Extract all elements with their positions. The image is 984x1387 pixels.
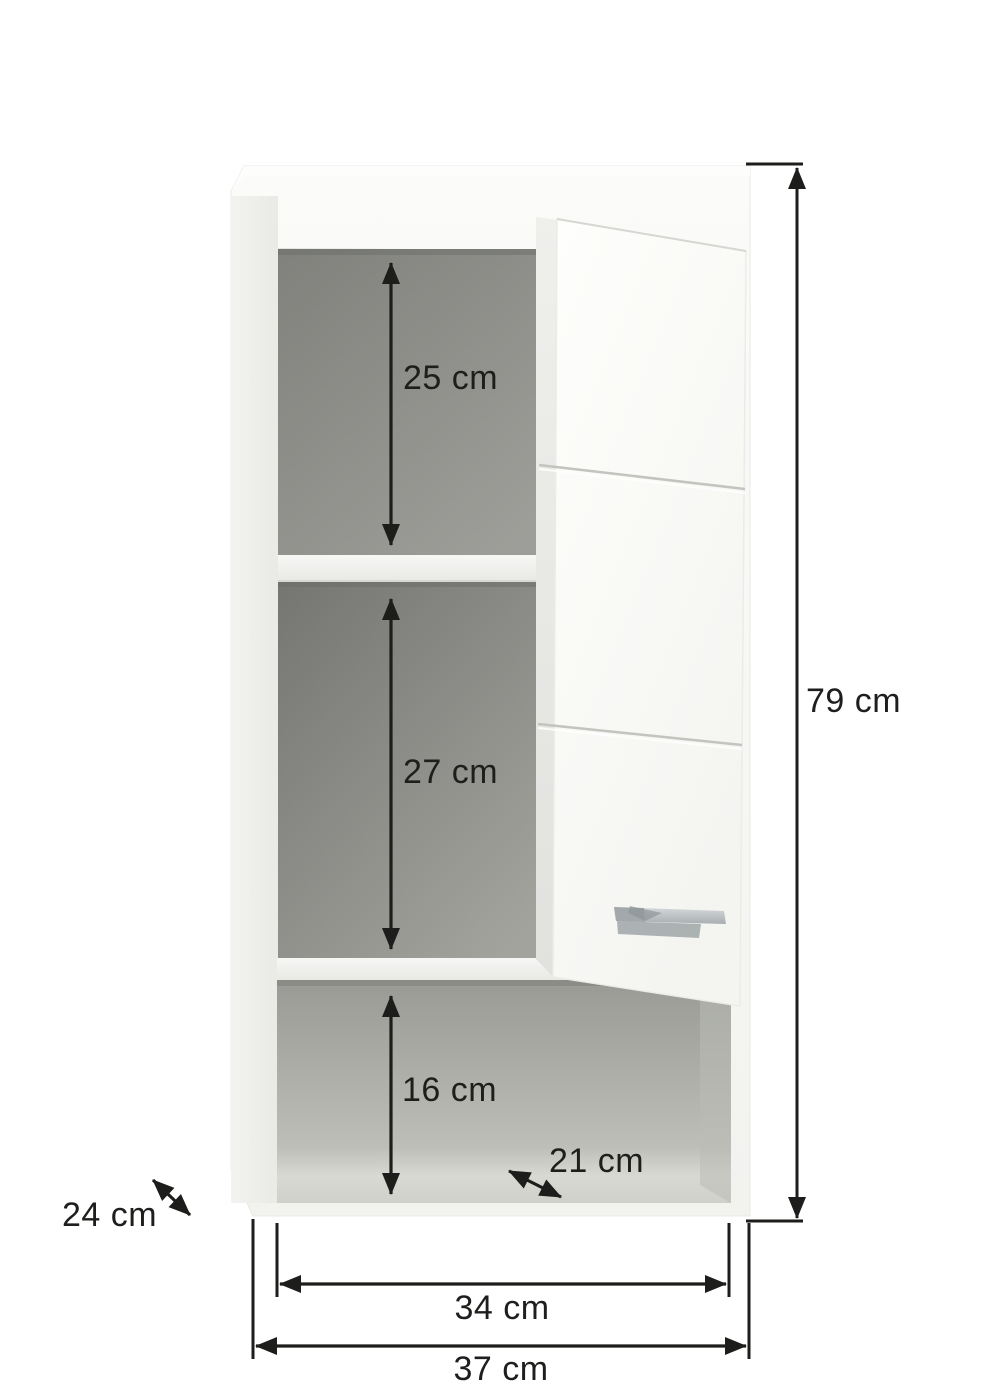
bottom-compartment-depth-label: 21 cm	[549, 1142, 644, 1180]
cabinet-depth-label: 24 cm	[62, 1196, 157, 1234]
dimension-diagram: 25 cm 27 cm 16 cm 21 cm 24 cm 79 cm 34 c…	[0, 0, 984, 1387]
middle-compartment-height-label: 27 cm	[403, 753, 498, 791]
shelf-upper	[278, 555, 556, 582]
bottom-compartment-height-label: 16 cm	[402, 1071, 497, 1109]
diagram-canvas: 25 cm 27 cm 16 cm 21 cm 24 cm 79 cm 34 c…	[0, 0, 984, 1387]
top-compartment-height-label: 25 cm	[403, 359, 498, 397]
cabinet-door	[536, 217, 746, 1006]
dim-cabinet-depth	[153, 1180, 190, 1215]
dim-cabinet-height	[746, 164, 803, 1221]
compartment-bottom	[277, 980, 731, 1203]
interior-width-label: 34 cm	[454, 1289, 549, 1327]
cabinet-left-frame	[231, 196, 278, 1203]
compartment-top	[278, 249, 556, 555]
cabinet-width-label: 37 cm	[453, 1350, 548, 1387]
door-panel	[553, 219, 746, 1006]
cabinet-height-label: 79 cm	[806, 682, 901, 720]
cabinet	[231, 166, 750, 1216]
dim-interior-width	[277, 1223, 729, 1297]
cabinet-depth-arrow	[153, 1180, 190, 1215]
